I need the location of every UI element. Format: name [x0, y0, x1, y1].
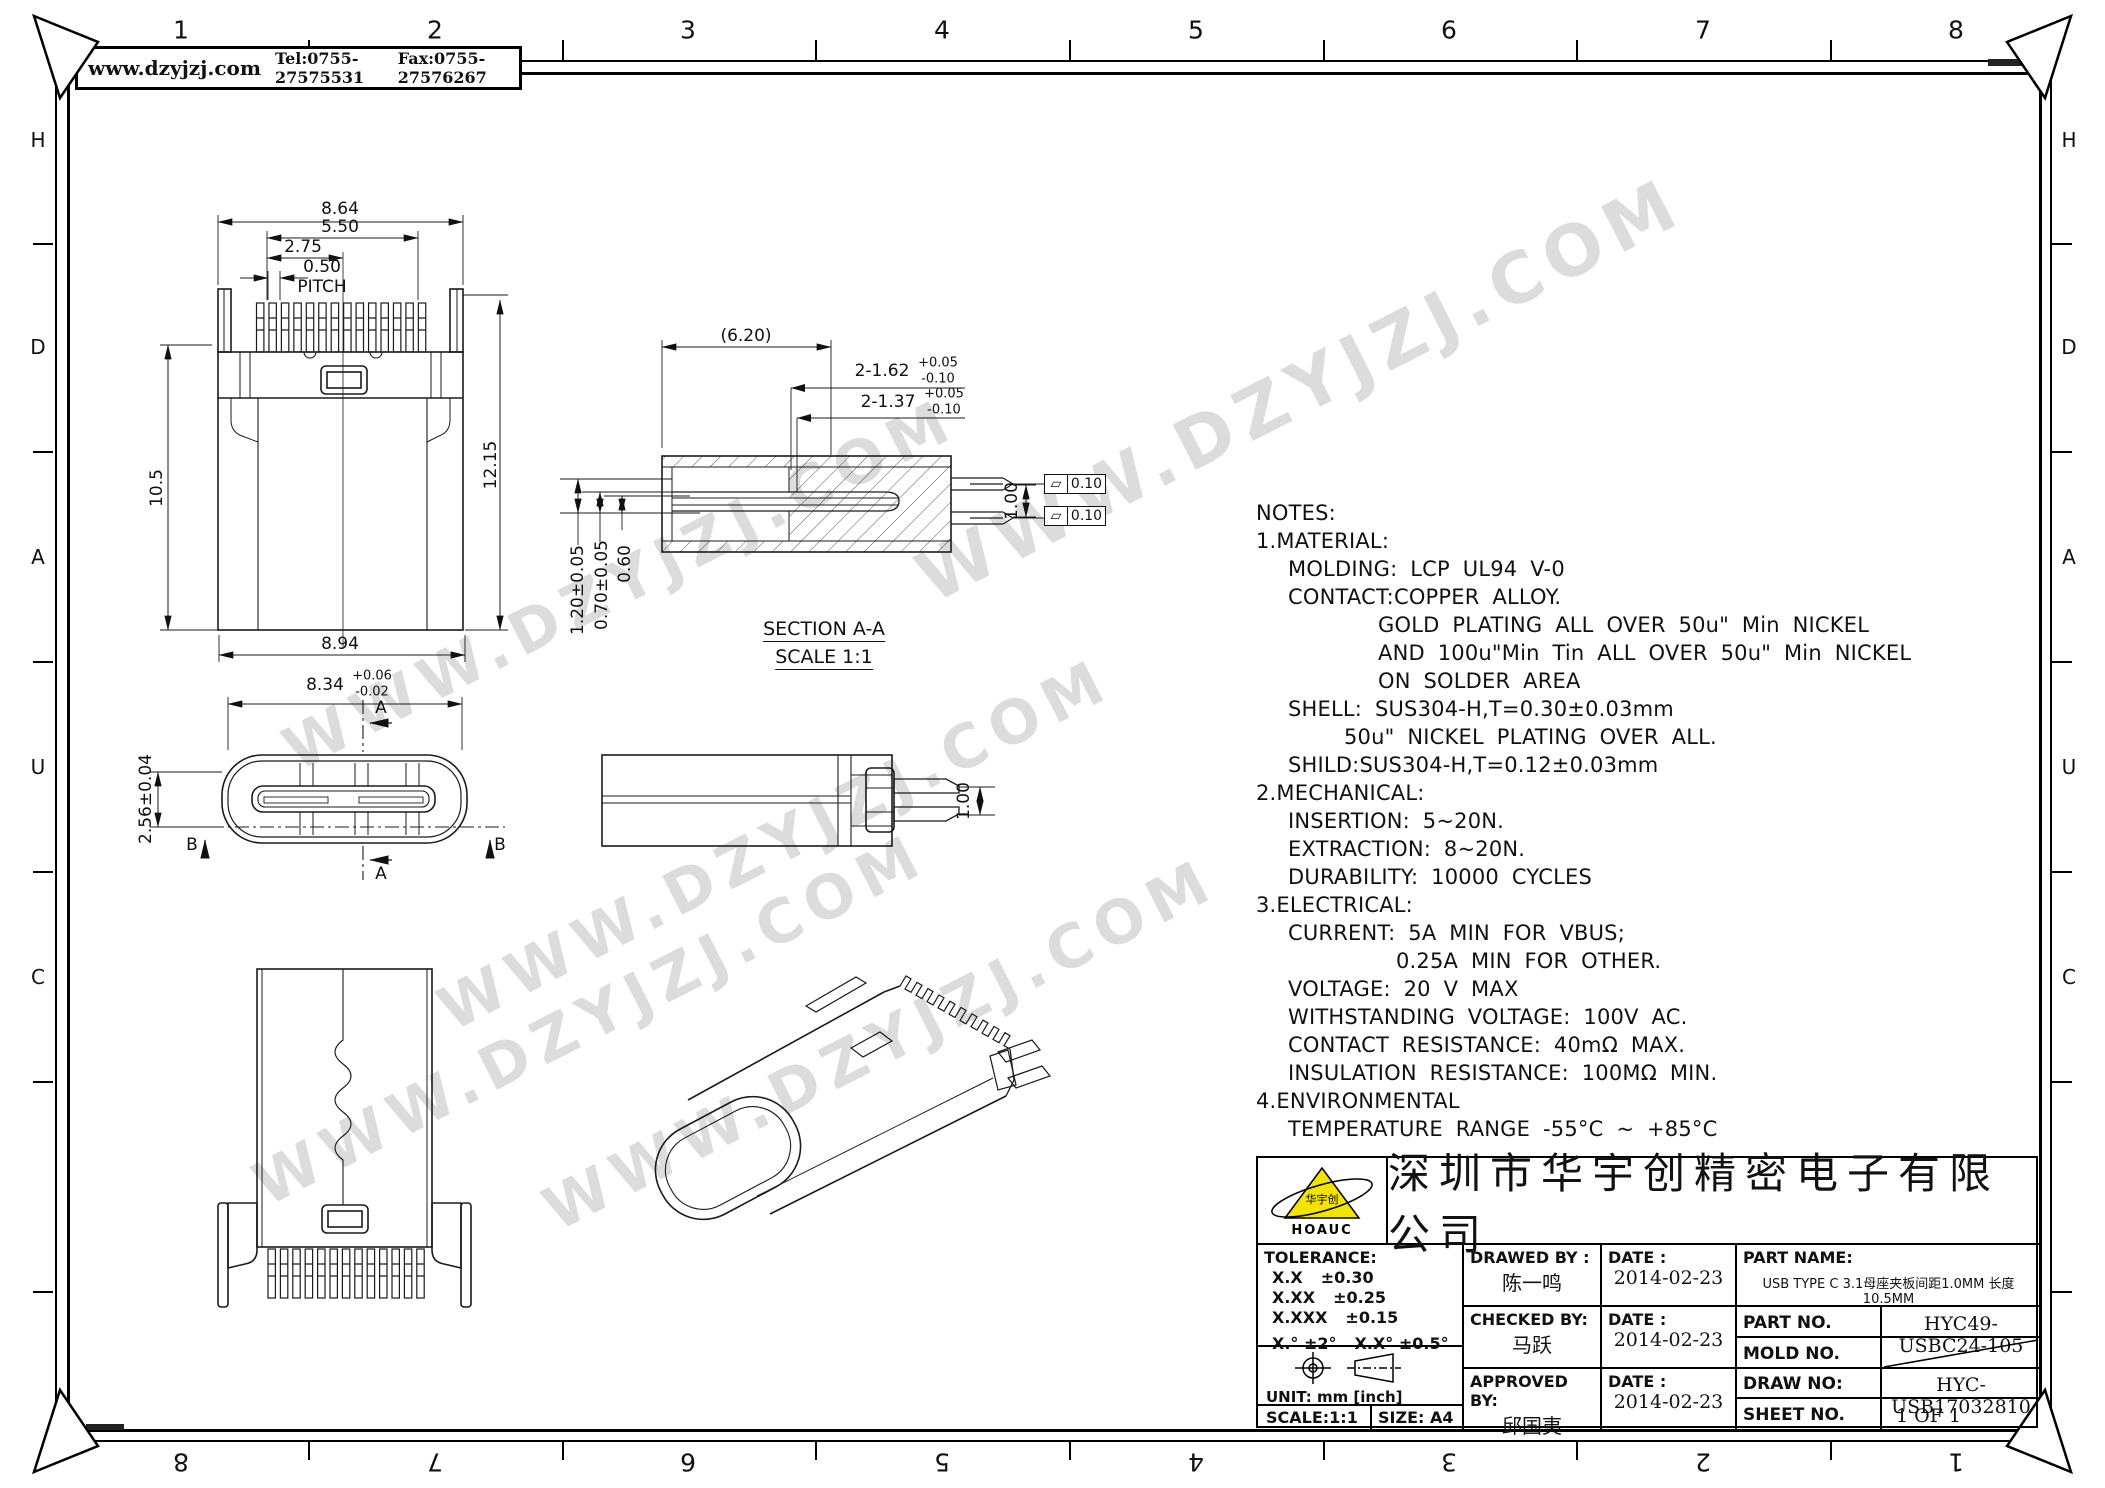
notes-line: EXTRACTION: 8~20N. [1256, 835, 1916, 863]
isometric-view [639, 976, 1050, 1236]
third-angle-projection-icon [1258, 1347, 1464, 1388]
dim-tolerance: -0.10 [927, 403, 961, 418]
approved-by-label: APPROVED BY: [1464, 1369, 1600, 1410]
flatness-callout: ▱ 0.10 [1044, 474, 1106, 494]
notes-line: INSERTION: 5~20N. [1256, 807, 1916, 835]
notes-line: 4.ENVIRONMENTAL [1256, 1087, 1916, 1115]
notes-line: 2.MECHANICAL: [1256, 779, 1916, 807]
dim-label: 8.64 [321, 199, 359, 219]
scale-label: SCALE:1:1 [1258, 1406, 1372, 1430]
part-name-value: USB TYPE C 3.1母座夹板间距1.0MM 长度10.5MM [1737, 1273, 2040, 1307]
dim-label: 10.5 [147, 469, 167, 507]
notes-line: 0.25A MIN FOR OTHER. [1256, 947, 1916, 975]
tolerance-value: ±0.25 [1333, 1288, 1386, 1307]
date-cell: DATE : 2014-02-23 [1602, 1369, 1737, 1430]
date-cell: DATE : 2014-02-23 [1602, 1245, 1737, 1307]
draw-no-value: HYC-USB17032810 [1882, 1369, 2040, 1399]
company-name: 深圳市华宇创精密电子有限公司 [1388, 1158, 2040, 1245]
mold-no-value [1882, 1338, 2040, 1369]
notes-line: VOLTAGE: 20 V MAX [1256, 975, 1916, 1003]
part-no-value: HYC49-USBC24-105 [1882, 1307, 2040, 1338]
notes-line: INSULATION RESISTANCE: 100MΩ MIN. [1256, 1059, 1916, 1087]
dim-label: (6.20) [720, 326, 771, 346]
tolerance-title: TOLERANCE: [1258, 1245, 1462, 1267]
checked-by-name: 马跃 [1464, 1329, 1600, 1358]
dim-tolerance: -0.10 [921, 372, 955, 387]
dim-label: 0.50 [303, 257, 341, 277]
part-name-cell: PART NAME: USB TYPE C 3.1母座夹板间距1.0MM 长度1… [1737, 1245, 2040, 1307]
section-view [560, 340, 1044, 552]
drawed-by-name: 陈一鸣 [1464, 1267, 1600, 1296]
dim-label: 1.00 [1002, 482, 1022, 520]
dim-label: 2.56±0.04 [136, 754, 156, 844]
checked-by-cell: CHECKED BY: 马跃 [1464, 1307, 1602, 1369]
notes-line: CONTACT RESISTANCE: 40mΩ MAX. [1256, 1031, 1916, 1059]
notes-line: MOLDING: LCP UL94 V-0 [1256, 555, 1916, 583]
tolerance-range: X.XXX [1272, 1308, 1327, 1327]
drawing-sheet: 1 2 3 4 5 6 7 8 8 7 6 5 4 3 2 1 H D A U … [0, 0, 2105, 1488]
dim-label: 1.00 [954, 782, 974, 820]
drawed-by-cell: DRAWED BY : 陈一鸣 [1464, 1245, 1602, 1307]
approved-by-cell: APPROVED BY: 邱国夷 [1464, 1369, 1602, 1430]
notes-block: NOTES: 1.MATERIAL: MOLDING: LCP UL94 V-0… [1256, 499, 1916, 1143]
dim-tolerance: +0.05 [918, 356, 958, 371]
dim-tolerance: +0.05 [924, 387, 964, 402]
approved-by-name: 邱国夷 [1464, 1410, 1600, 1439]
side-view [602, 755, 995, 846]
tolerance-range: X.X [1272, 1268, 1303, 1287]
notes-line: SHILD:SUS304-H,T=0.12±0.03mm [1256, 751, 1916, 779]
dim-label: 2.75 [284, 237, 322, 257]
unit-label: UNIT: mm [inch] [1258, 1388, 1464, 1406]
draw-no-label: DRAW NO: [1737, 1369, 1882, 1399]
company-logo: 华宇创 HOAUC [1258, 1158, 1388, 1245]
tolerance-range: X.XX [1272, 1288, 1315, 1307]
tolerance-value: ±0.15 [1345, 1308, 1398, 1327]
dim-label: PITCH [297, 277, 346, 297]
logo-caption-text: HOAUC [1291, 1223, 1352, 1238]
section-arrow-label: B [186, 835, 198, 855]
dim-label: 2-1.37 [861, 392, 916, 412]
notes-line: CONTACT:COPPER ALLOY. [1256, 583, 1916, 611]
checked-by-label: CHECKED BY: [1464, 1307, 1600, 1329]
date-label: DATE : [1602, 1307, 1735, 1329]
mold-no-label: MOLD NO. [1737, 1338, 1882, 1369]
dim-tolerance: +0.06 [352, 669, 392, 684]
notes-line: 1.MATERIAL: [1256, 527, 1916, 555]
bottom-view [218, 969, 471, 1307]
dim-label: 0.70±0.05 [592, 540, 612, 630]
sheet-no-label: SHEET NO. [1737, 1399, 1882, 1430]
pin-row [268, 1249, 424, 1298]
flatness-icon: ▱ [1045, 507, 1068, 525]
dim-label: 8.94 [321, 634, 359, 654]
tolerance-box: TOLERANCE: X.X±0.30 X.XX±0.25 X.XXX±0.15… [1258, 1245, 1464, 1347]
drawed-by-label: DRAWED BY : [1464, 1245, 1600, 1267]
date-value: 2014-02-23 [1602, 1391, 1735, 1413]
flatness-icon: ▱ [1045, 475, 1068, 493]
flatness-callout: ▱ 0.10 [1044, 506, 1106, 526]
flatness-value: 0.10 [1068, 507, 1105, 525]
part-name-label: PART NAME: [1737, 1245, 2040, 1267]
notes-line: CURRENT: 5A MIN FOR VBUS; [1256, 919, 1916, 947]
notes-line: ON SOLDER AREA [1256, 667, 1916, 695]
front-view [150, 697, 505, 880]
dim-label: 0.60 [615, 545, 635, 583]
part-no-label: PART NO. [1737, 1307, 1882, 1338]
date-value: 2014-02-23 [1602, 1267, 1735, 1289]
dim-label: 2-1.62 [855, 361, 910, 381]
notes-line: DURABILITY: 10000 CYCLES [1256, 863, 1916, 891]
notes-line: WITHSTANDING VOLTAGE: 100V AC. [1256, 1003, 1916, 1031]
section-title: SECTION A-A [763, 618, 885, 642]
date-label: DATE : [1602, 1369, 1735, 1391]
section-scale: SCALE 1:1 [775, 646, 873, 670]
dim-label: 5.50 [321, 217, 359, 237]
date-label: DATE : [1602, 1245, 1735, 1267]
size-label: SIZE: A4 [1372, 1406, 1464, 1430]
section-arrow-label: A [375, 698, 387, 718]
sheet-no-value: 1 OF 1 [1882, 1399, 2040, 1430]
pin-row [257, 303, 426, 352]
section-arrow-label: A [375, 864, 387, 884]
notes-line: 50u" NICKEL PLATING OVER ALL. [1256, 723, 1916, 751]
notes-line: 3.ELECTRICAL: [1256, 891, 1916, 919]
flatness-value: 0.10 [1068, 475, 1105, 493]
date-value: 2014-02-23 [1602, 1329, 1735, 1351]
notes-line: NOTES: [1256, 499, 1916, 527]
section-arrow-label: B [494, 835, 506, 855]
dim-label: 1.20±0.05 [568, 545, 588, 635]
dim-label: 8.34 [306, 675, 344, 695]
notes-line: AND 100u"Min Tin ALL OVER 50u" Min NICKE… [1256, 639, 1916, 667]
tolerance-value: ±0.30 [1321, 1268, 1374, 1287]
logo-cn-text: 华宇创 [1306, 1192, 1339, 1206]
date-cell: DATE : 2014-02-23 [1602, 1307, 1737, 1369]
title-block: 华宇创 HOAUC 深圳市华宇创精密电子有限公司 TOLERANCE: X.X±… [1256, 1156, 2038, 1428]
notes-line: SHELL: SUS304-H,T=0.30±0.03mm [1256, 695, 1916, 723]
dim-label: 12.15 [481, 441, 501, 490]
notes-line: GOLD PLATING ALL OVER 50u" Min NICKEL [1256, 611, 1916, 639]
